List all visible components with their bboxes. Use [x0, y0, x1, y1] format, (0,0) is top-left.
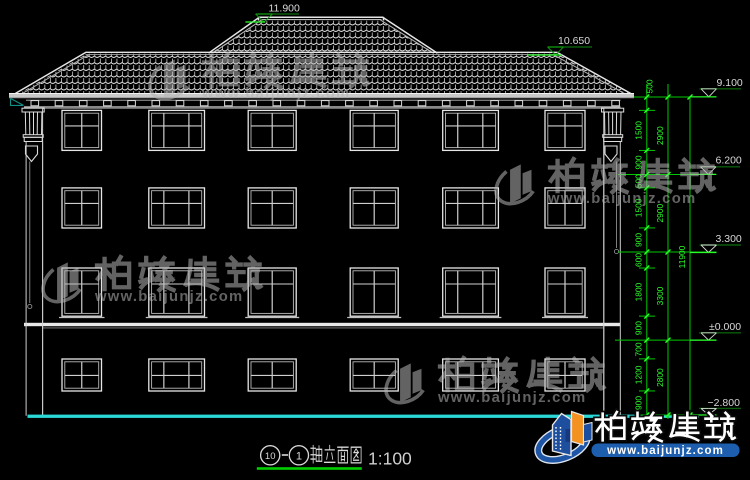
svg-text:1: 1 [296, 451, 302, 463]
svg-text:www.baijunjz.com: www.baijunjz.com [606, 445, 724, 457]
svg-text:±0.000: ±0.000 [709, 321, 741, 333]
svg-text:9.100: 9.100 [717, 77, 743, 89]
svg-text:900: 900 [634, 321, 644, 335]
svg-text:11900: 11900 [677, 245, 687, 268]
svg-text:11.900: 11.900 [269, 3, 300, 15]
svg-text:www.baijunjz.com: www.baijunjz.com [94, 289, 244, 305]
svg-text:3300: 3300 [655, 286, 665, 305]
svg-text:3.300: 3.300 [716, 233, 742, 245]
svg-text:600: 600 [634, 253, 644, 267]
svg-text:10: 10 [265, 451, 276, 462]
svg-text:www.baijunjz.com: www.baijunjz.com [437, 390, 587, 406]
svg-text:−2.800: −2.800 [708, 397, 741, 409]
svg-text:10.650: 10.650 [558, 35, 590, 47]
svg-text:2800: 2800 [655, 368, 665, 387]
svg-text:700: 700 [634, 342, 644, 356]
svg-text:900: 900 [634, 396, 644, 410]
svg-text:www.baijunjz.com: www.baijunjz.com [201, 86, 351, 102]
svg-text:500: 500 [645, 79, 655, 93]
svg-text:1500: 1500 [634, 121, 644, 140]
svg-text:6.200: 6.200 [716, 155, 742, 167]
svg-text:2900: 2900 [655, 126, 665, 145]
svg-text:www.baijunjz.com: www.baijunjz.com [547, 191, 697, 207]
svg-text:1800: 1800 [634, 282, 644, 301]
svg-text:900: 900 [634, 233, 644, 247]
svg-text:1200: 1200 [634, 365, 644, 384]
svg-text:1:100: 1:100 [368, 449, 412, 469]
